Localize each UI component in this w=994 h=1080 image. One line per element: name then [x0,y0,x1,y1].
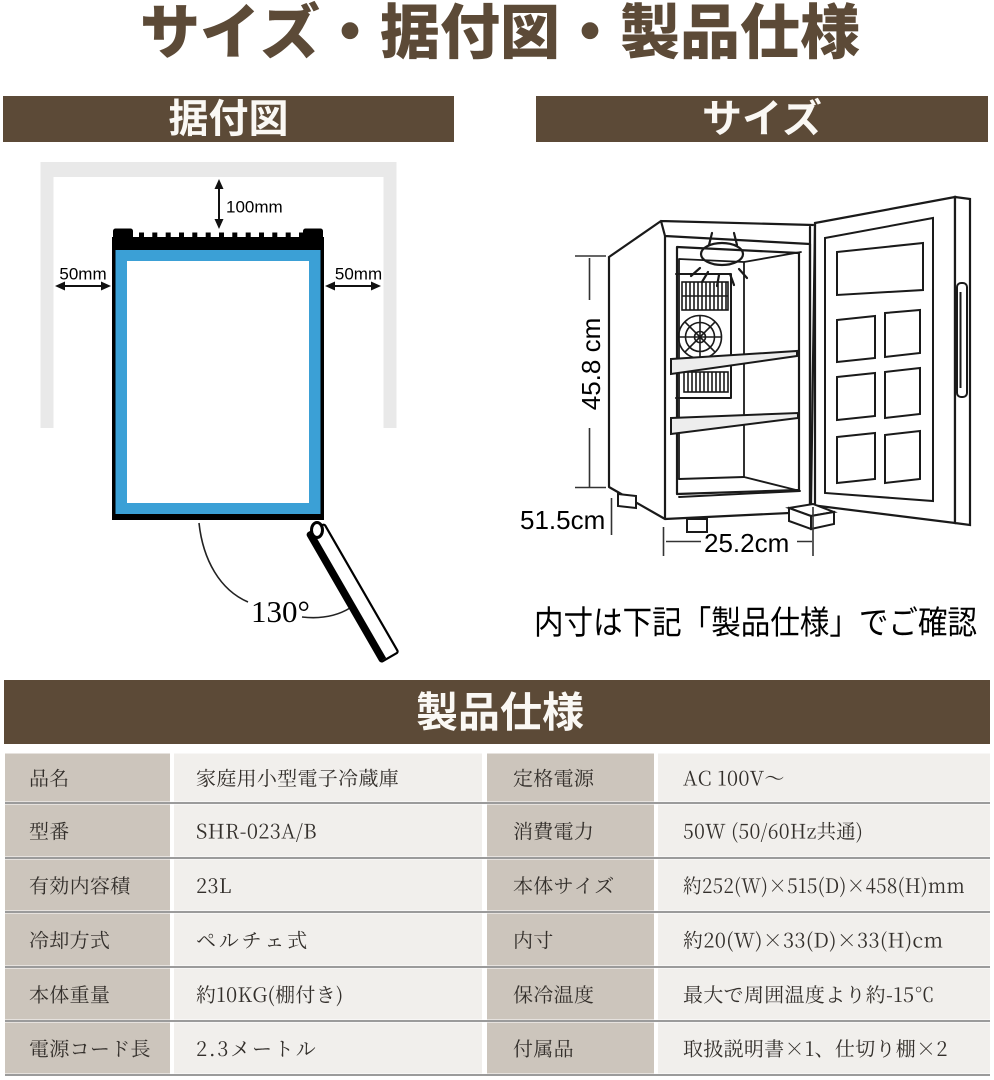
svg-text:50mm: 50mm [59,265,106,284]
svg-text:100mm: 100mm [226,198,283,217]
svg-text:51.5cm: 51.5cm [520,505,605,535]
svg-text:25.2cm: 25.2cm [704,528,789,558]
svg-text:50mm: 50mm [335,265,382,284]
svg-text:45.8 cm: 45.8 cm [576,318,606,411]
svg-text:130°: 130° [251,594,310,629]
